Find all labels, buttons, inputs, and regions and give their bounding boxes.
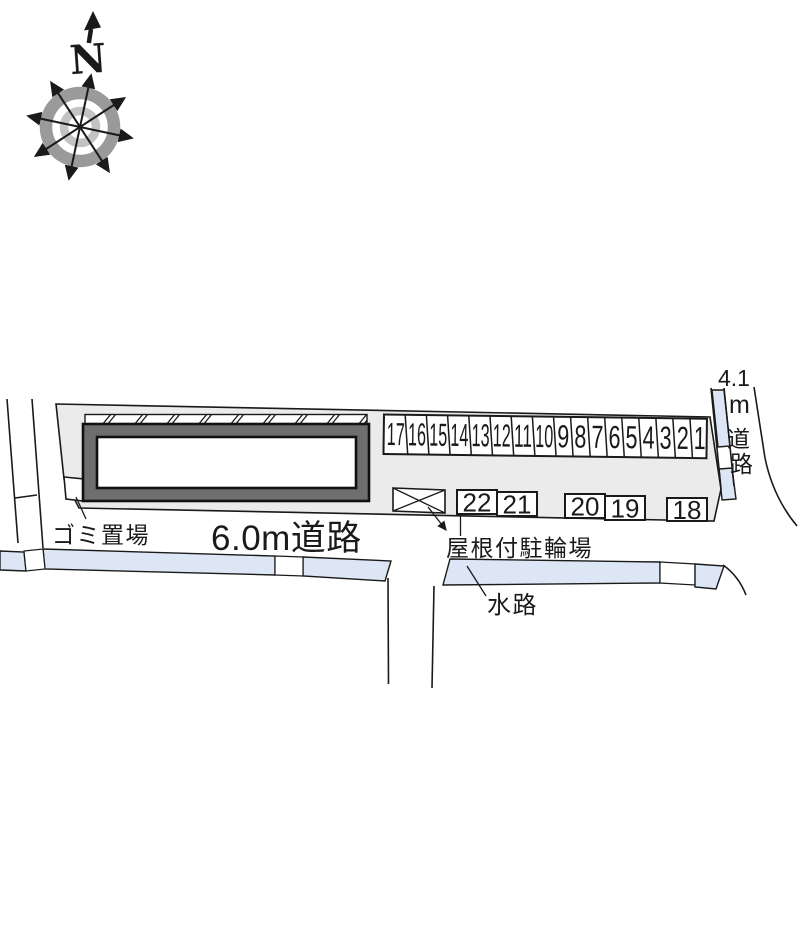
waterway-bridge-right [660,562,695,585]
waterway-label: 水路 [487,592,538,619]
stall-number-9: 9 [557,418,569,454]
svg-text:路: 路 [730,451,753,477]
stall-number-19: 19 [611,494,640,524]
site-plan-page: N 17 16 15 14 [0,0,800,940]
building [83,415,369,502]
stall-number-10: 10 [535,418,553,454]
road-60-label: 6.0m道路 [211,519,362,558]
waterway-bridge-mid [275,556,303,576]
waterway-bridge-left [24,549,45,571]
stall-number-5: 5 [625,419,637,455]
site-plan-svg: N 17 16 15 14 [0,0,800,940]
parking-stall-row1: 17 16 15 14 13 12 11 10 9 8 7 6 5 4 3 2 … [383,414,706,458]
svg-text:道: 道 [727,426,750,452]
stall-number-6: 6 [608,419,620,455]
stall-number-7: 7 [591,419,603,455]
bike-shed-label: 屋根付駐輪場 [446,535,593,561]
garbage-label: ゴミ置場 [52,522,150,548]
stall-number-17: 17 [387,416,405,452]
stall-number-11: 11 [514,418,532,454]
east-road-41 [711,387,797,526]
waterway [0,549,746,595]
stall-number-1: 1 [693,420,705,456]
north-label: N [68,35,108,84]
stall-number-13: 13 [471,417,489,453]
building-interior [97,437,356,488]
south-road [388,578,434,688]
stall-number-20: 20 [571,492,600,522]
bike-shed-box [393,488,445,513]
stall-number-15: 15 [429,417,447,453]
svg-text:4.1: 4.1 [718,365,750,391]
stall-number-3: 3 [659,420,671,456]
stall-number-2: 2 [676,420,688,456]
stall-number-16: 16 [408,416,426,452]
stall-number-8: 8 [574,418,586,454]
compass-rose: N [17,11,143,190]
east-road-outer-edge [754,387,797,526]
waterway-east-curve [723,565,746,595]
garbage-box [64,477,84,501]
stall-number-14: 14 [450,417,468,453]
stall-number-21: 21 [503,490,532,520]
stall-number-22: 22 [463,488,492,518]
svg-text:m: m [729,391,750,419]
left-road [7,399,43,548]
stall-number-12: 12 [493,417,511,453]
stall-number-18: 18 [673,495,702,525]
stall-number-4: 4 [642,419,654,455]
